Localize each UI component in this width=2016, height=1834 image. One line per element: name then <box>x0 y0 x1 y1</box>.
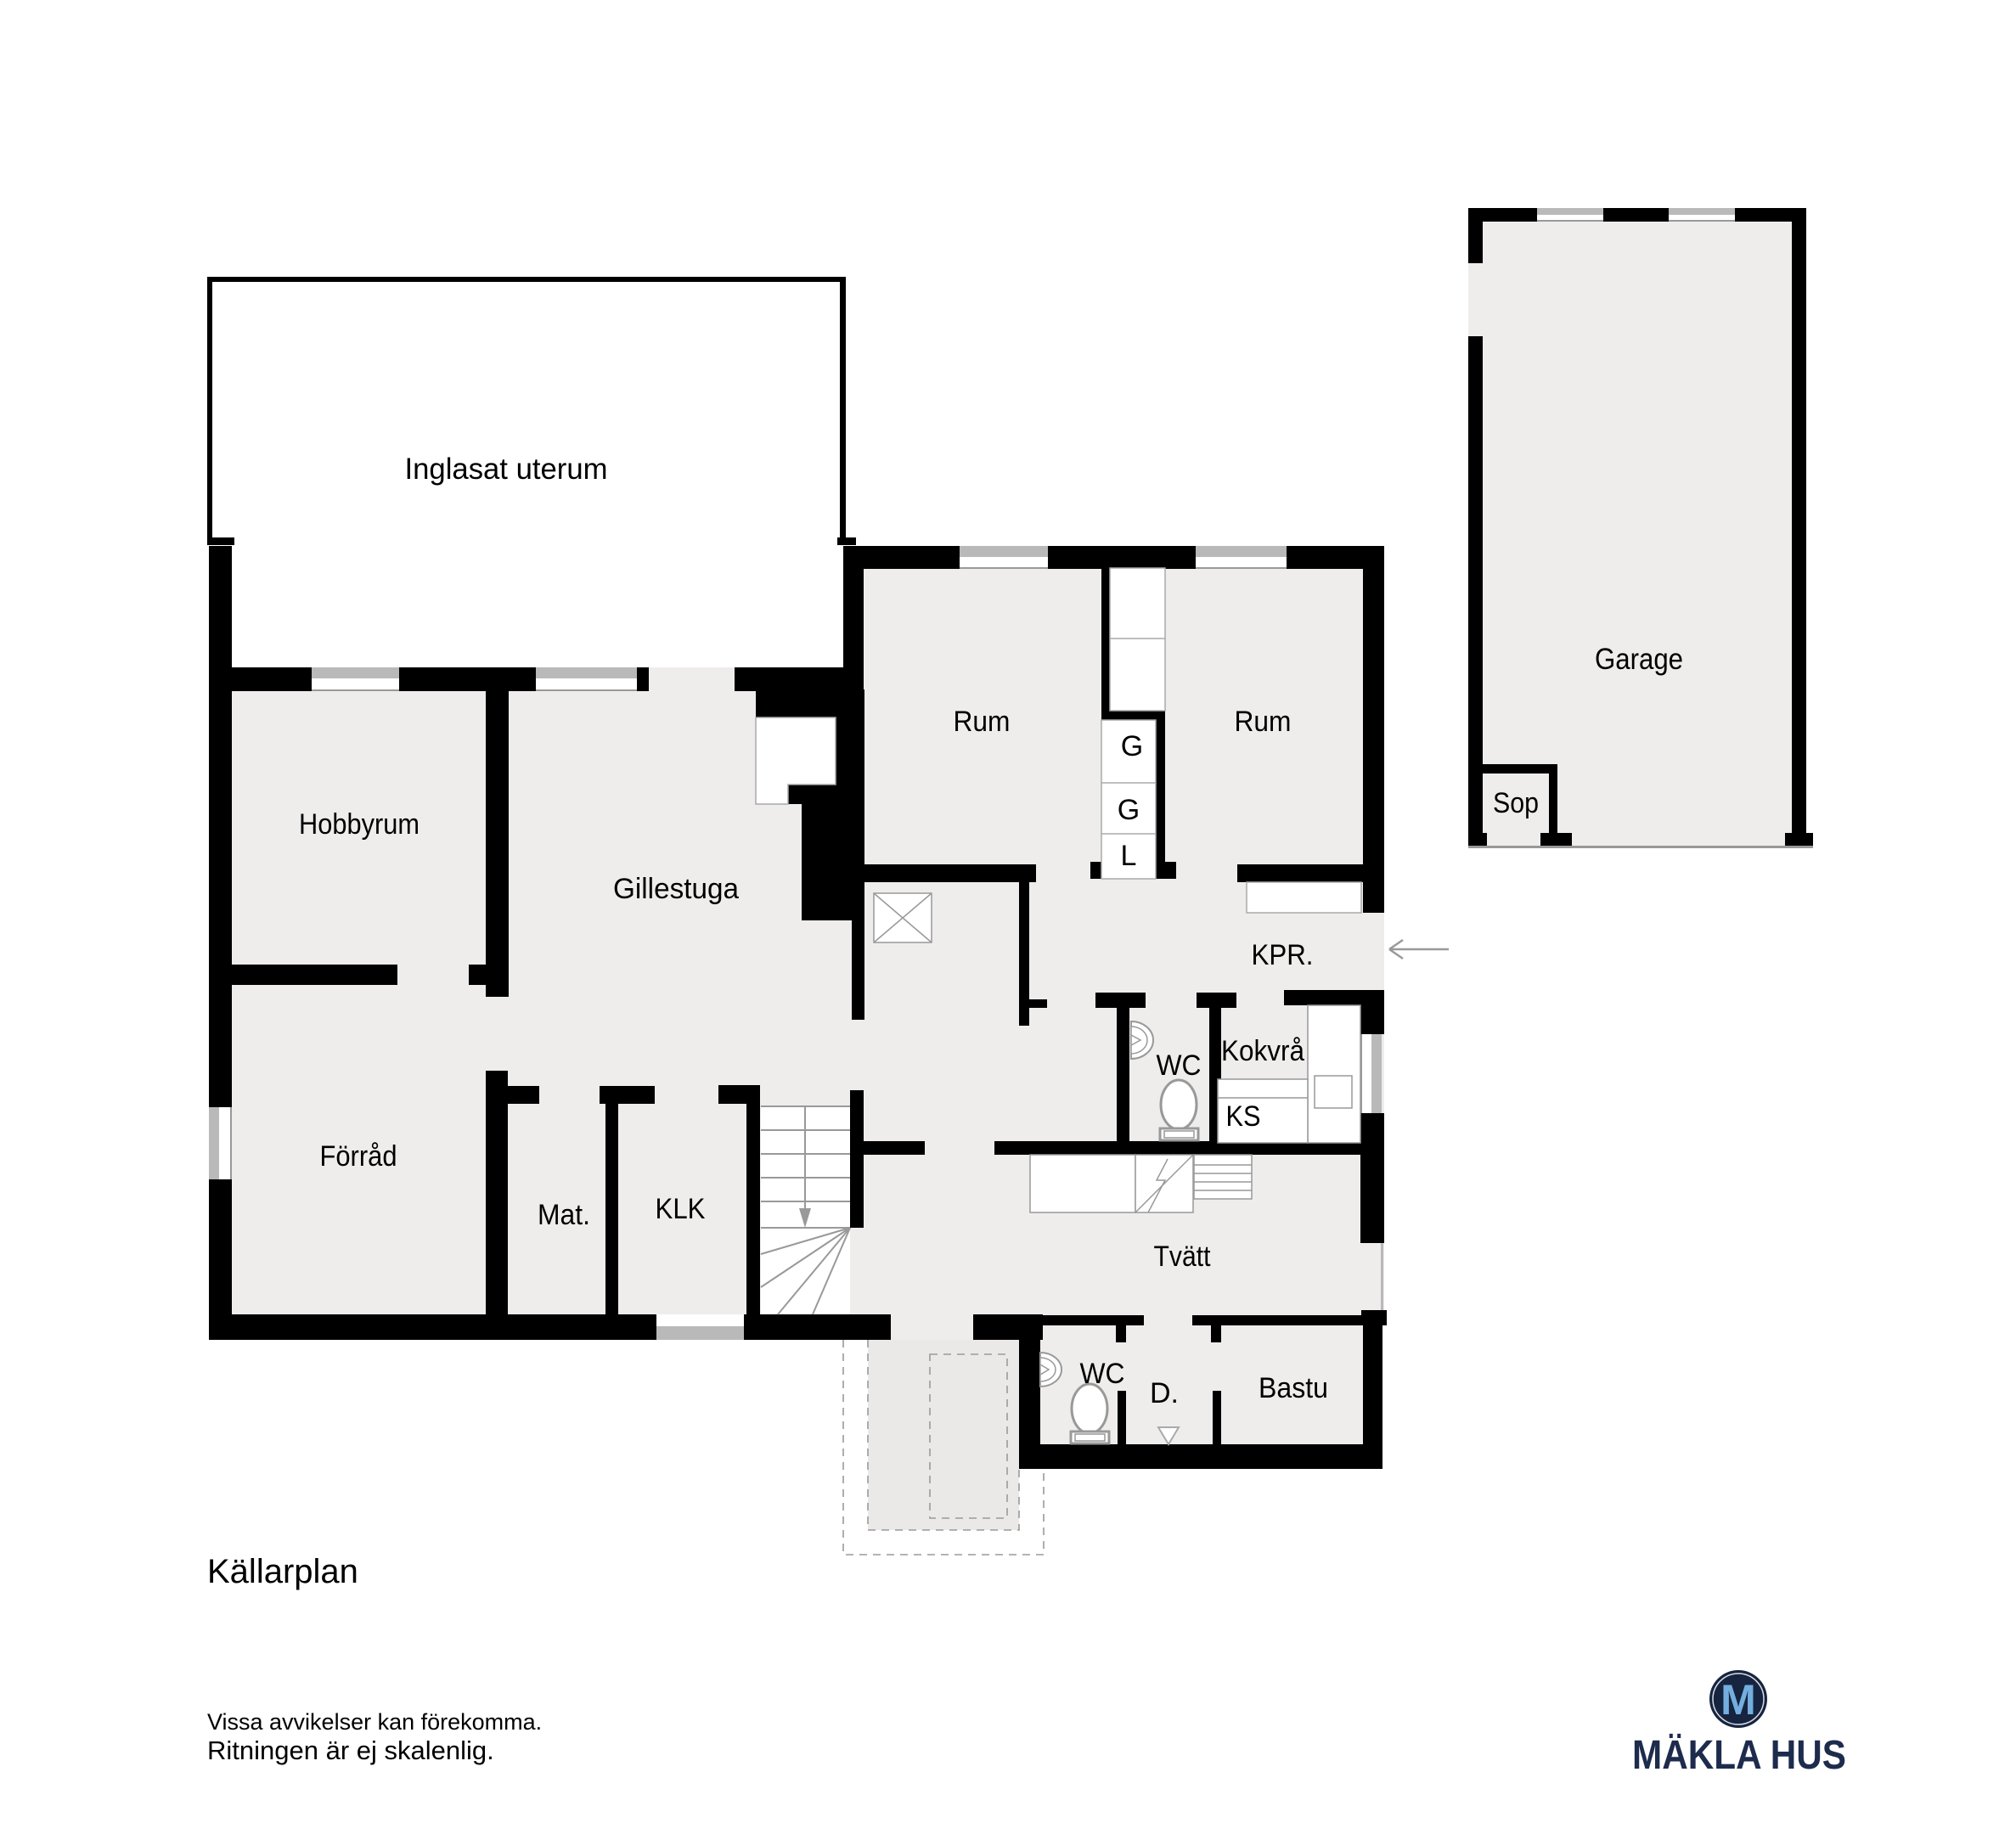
svg-text:WC: WC <box>1080 1358 1125 1390</box>
svg-text:Sop: Sop <box>1493 787 1539 819</box>
svg-text:WC: WC <box>1157 1049 1202 1082</box>
svg-text:KPR.: KPR. <box>1252 939 1314 971</box>
svg-text:MÄKLA HUS: MÄKLA HUS <box>1632 1733 1846 1778</box>
svg-text:Gillestuga: Gillestuga <box>613 873 739 905</box>
svg-text:Mat.: Mat. <box>538 1199 590 1231</box>
svg-text:Inglasat uterum: Inglasat uterum <box>405 453 608 486</box>
svg-text:KLK: KLK <box>656 1193 706 1225</box>
svg-text:G: G <box>1118 794 1140 826</box>
svg-text:Källarplan: Källarplan <box>207 1553 358 1590</box>
svg-text:Vissa avvikelser kan förekomma: Vissa avvikelser kan förekomma. <box>207 1709 542 1735</box>
svg-text:Hobbyrum: Hobbyrum <box>299 808 420 841</box>
svg-text:Rum: Rum <box>1235 706 1292 738</box>
svg-text:Kokvrå: Kokvrå <box>1221 1035 1304 1067</box>
svg-text:Tvätt: Tvätt <box>1154 1240 1211 1273</box>
svg-text:Garage: Garage <box>1595 643 1683 676</box>
svg-text:G: G <box>1121 730 1143 762</box>
svg-text:KS: KS <box>1226 1100 1261 1133</box>
svg-text:L: L <box>1121 840 1137 872</box>
svg-text:Rum: Rum <box>954 706 1011 738</box>
svg-text:Bastu: Bastu <box>1259 1372 1328 1404</box>
svg-text:D.: D. <box>1150 1377 1179 1409</box>
svg-text:Ritningen är ej skalenlig.: Ritningen är ej skalenlig. <box>207 1736 494 1765</box>
svg-text:M: M <box>1720 1676 1756 1724</box>
svg-text:Förråd: Förråd <box>320 1140 397 1173</box>
